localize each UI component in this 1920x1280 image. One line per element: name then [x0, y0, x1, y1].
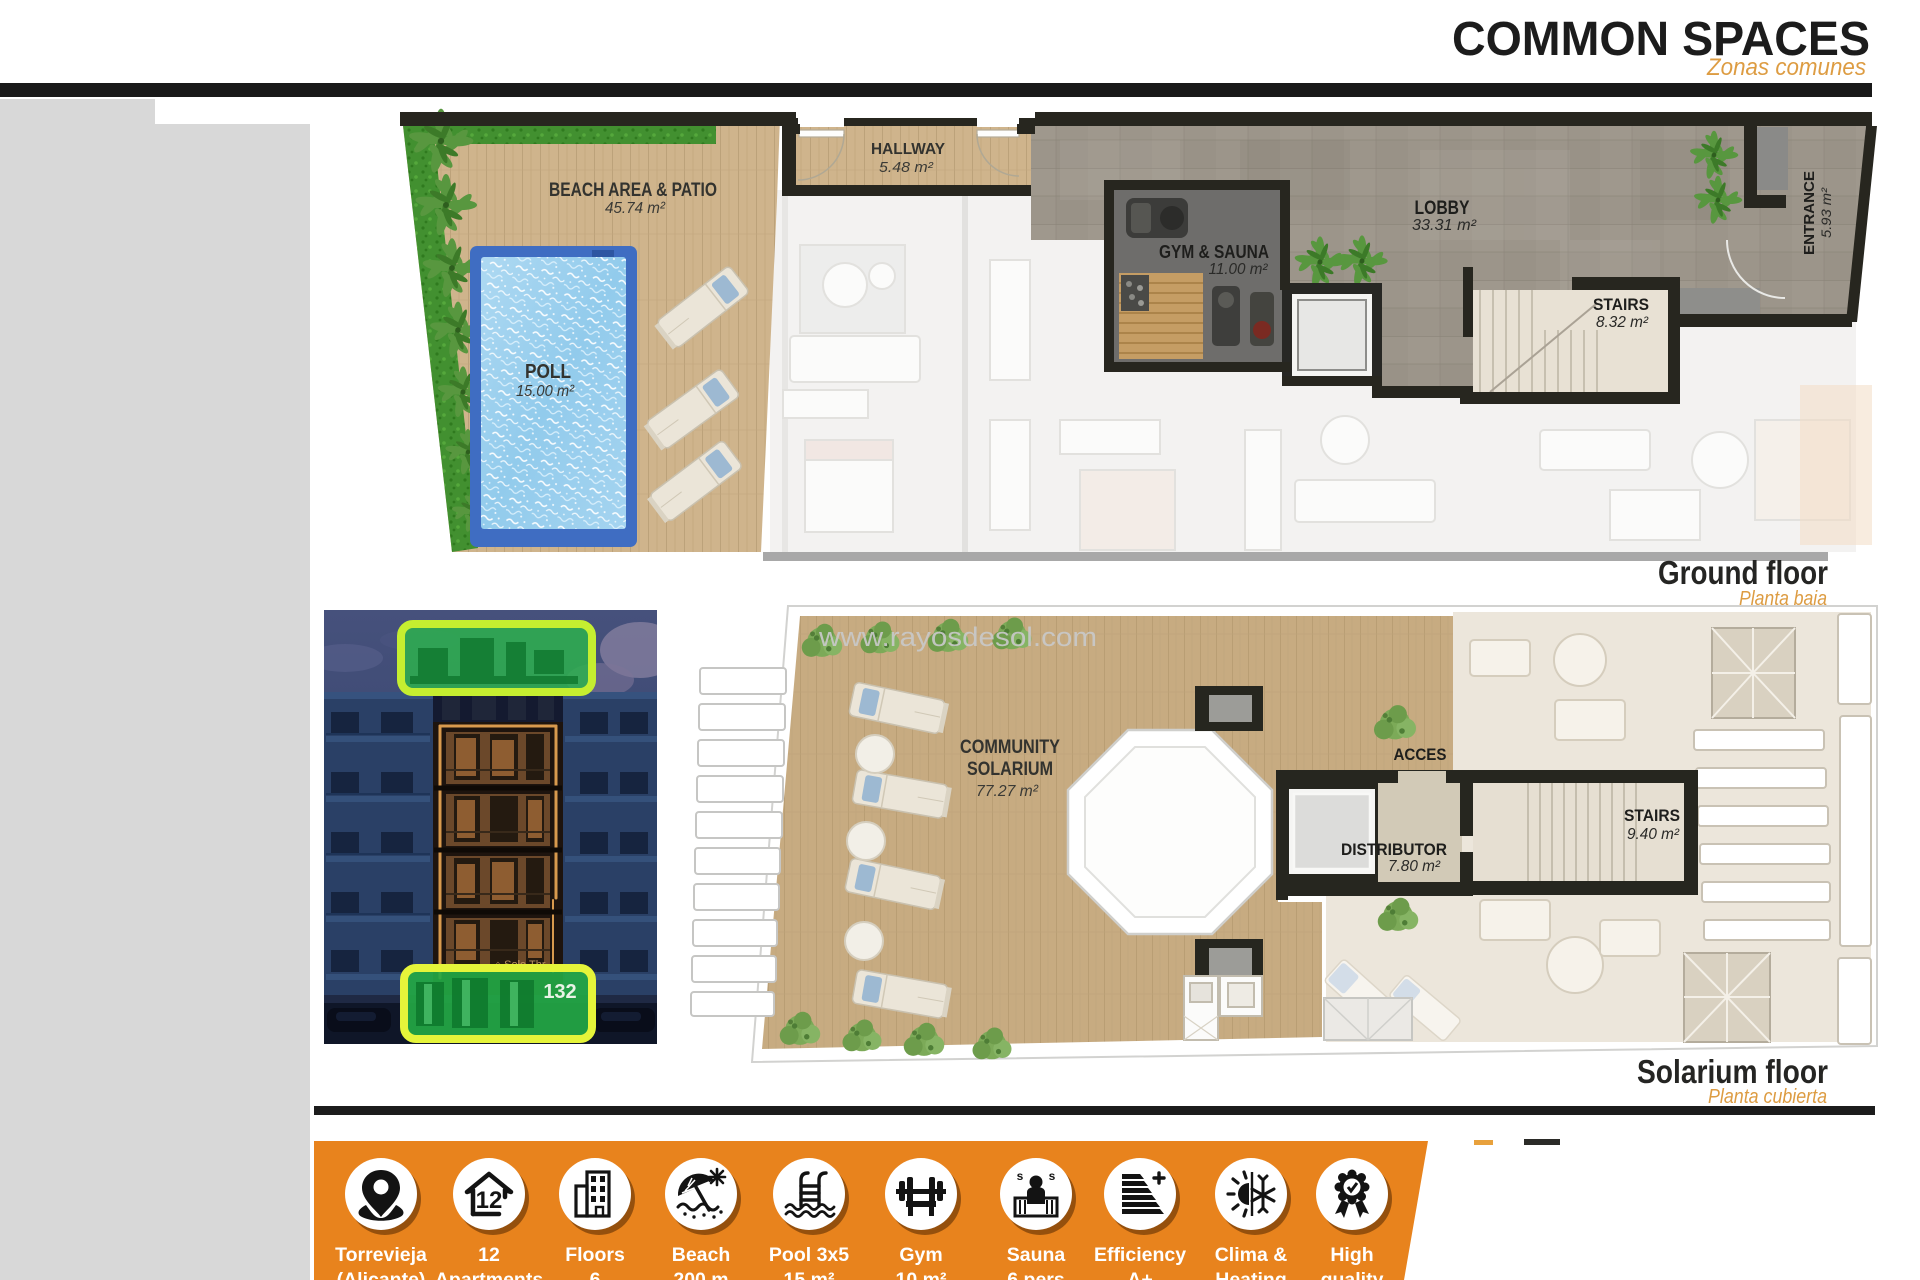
svg-text:132: 132 [543, 981, 576, 1003]
svg-text:(Alicante): (Alicante) [337, 1269, 426, 1280]
svg-text:HALLWAY: HALLWAY [871, 141, 946, 158]
svg-text:ACCES: ACCES [1394, 745, 1447, 764]
svg-text:11.00 m²: 11.00 m² [1209, 261, 1269, 278]
svg-text:5.93 m²: 5.93 m² [1819, 187, 1834, 238]
svg-text:BEACH AREA & PATIO: BEACH AREA & PATIO [549, 180, 717, 201]
svg-text:6: 6 [590, 1269, 601, 1280]
svg-text:7.80 m²: 7.80 m² [1388, 858, 1441, 875]
svg-text:6 pers: 6 pers [1007, 1269, 1065, 1280]
svg-text:Apartments: Apartments [435, 1269, 544, 1280]
svg-text:200 m: 200 m [673, 1269, 728, 1280]
svg-text:Pool 3x5: Pool 3x5 [769, 1244, 849, 1266]
svg-text:Zonas comunes: Zonas comunes [1706, 54, 1866, 81]
svg-text:STAIRS: STAIRS [1624, 806, 1680, 825]
svg-text:Efficiency: Efficiency [1094, 1244, 1186, 1266]
svg-text:POLL: POLL [525, 361, 571, 383]
svg-text:15 m²: 15 m² [784, 1269, 835, 1280]
svg-text:Ground floor: Ground floor [1658, 554, 1828, 591]
svg-text:8.32 m²: 8.32 m² [1596, 314, 1649, 331]
svg-text:Planta cubierta: Planta cubierta [1708, 1086, 1827, 1108]
svg-text:Gym: Gym [899, 1244, 942, 1266]
svg-text:5.48 m²: 5.48 m² [879, 160, 934, 176]
svg-text:quality: quality [1321, 1269, 1384, 1280]
svg-text:STAIRS: STAIRS [1593, 295, 1649, 314]
svg-text:SOLARIUM: SOLARIUM [967, 759, 1053, 780]
svg-text:Solarium floor: Solarium floor [1637, 1053, 1828, 1090]
svg-text:COMMUNITY: COMMUNITY [960, 737, 1060, 758]
svg-text:Floors: Floors [565, 1244, 625, 1266]
svg-text:33.31 m²: 33.31 m² [1412, 217, 1477, 234]
svg-text:High: High [1330, 1244, 1373, 1266]
svg-text:Torrevieja: Torrevieja [335, 1244, 427, 1266]
svg-text:Sauna: Sauna [1007, 1244, 1066, 1266]
svg-text:77.27 m²: 77.27 m² [976, 783, 1039, 800]
svg-text:12: 12 [476, 1187, 503, 1214]
svg-text:ENTRANCE: ENTRANCE [1801, 171, 1818, 255]
svg-text:9.40 m²: 9.40 m² [1627, 826, 1680, 843]
svg-text:GYM & SAUNA: GYM & SAUNA [1159, 242, 1269, 262]
svg-text:www.rayosdesol.com: www.rayosdesol.com [818, 622, 1097, 652]
svg-text:s: s [1017, 1169, 1024, 1183]
svg-text:45.74 m²: 45.74 m² [605, 200, 666, 217]
svg-text:12: 12 [478, 1244, 500, 1266]
svg-text:15.00 m²: 15.00 m² [516, 383, 575, 400]
svg-text:s: s [1049, 1169, 1056, 1183]
svg-text:DISTRIBUTOR: DISTRIBUTOR [1341, 840, 1447, 859]
svg-text:Beach: Beach [672, 1244, 731, 1266]
svg-text:A+: A+ [1127, 1269, 1152, 1280]
svg-text:LOBBY: LOBBY [1415, 198, 1470, 219]
svg-text:Heating: Heating [1215, 1269, 1287, 1280]
svg-text:10 m²: 10 m² [896, 1269, 947, 1280]
svg-text:Clima &: Clima & [1215, 1244, 1288, 1266]
